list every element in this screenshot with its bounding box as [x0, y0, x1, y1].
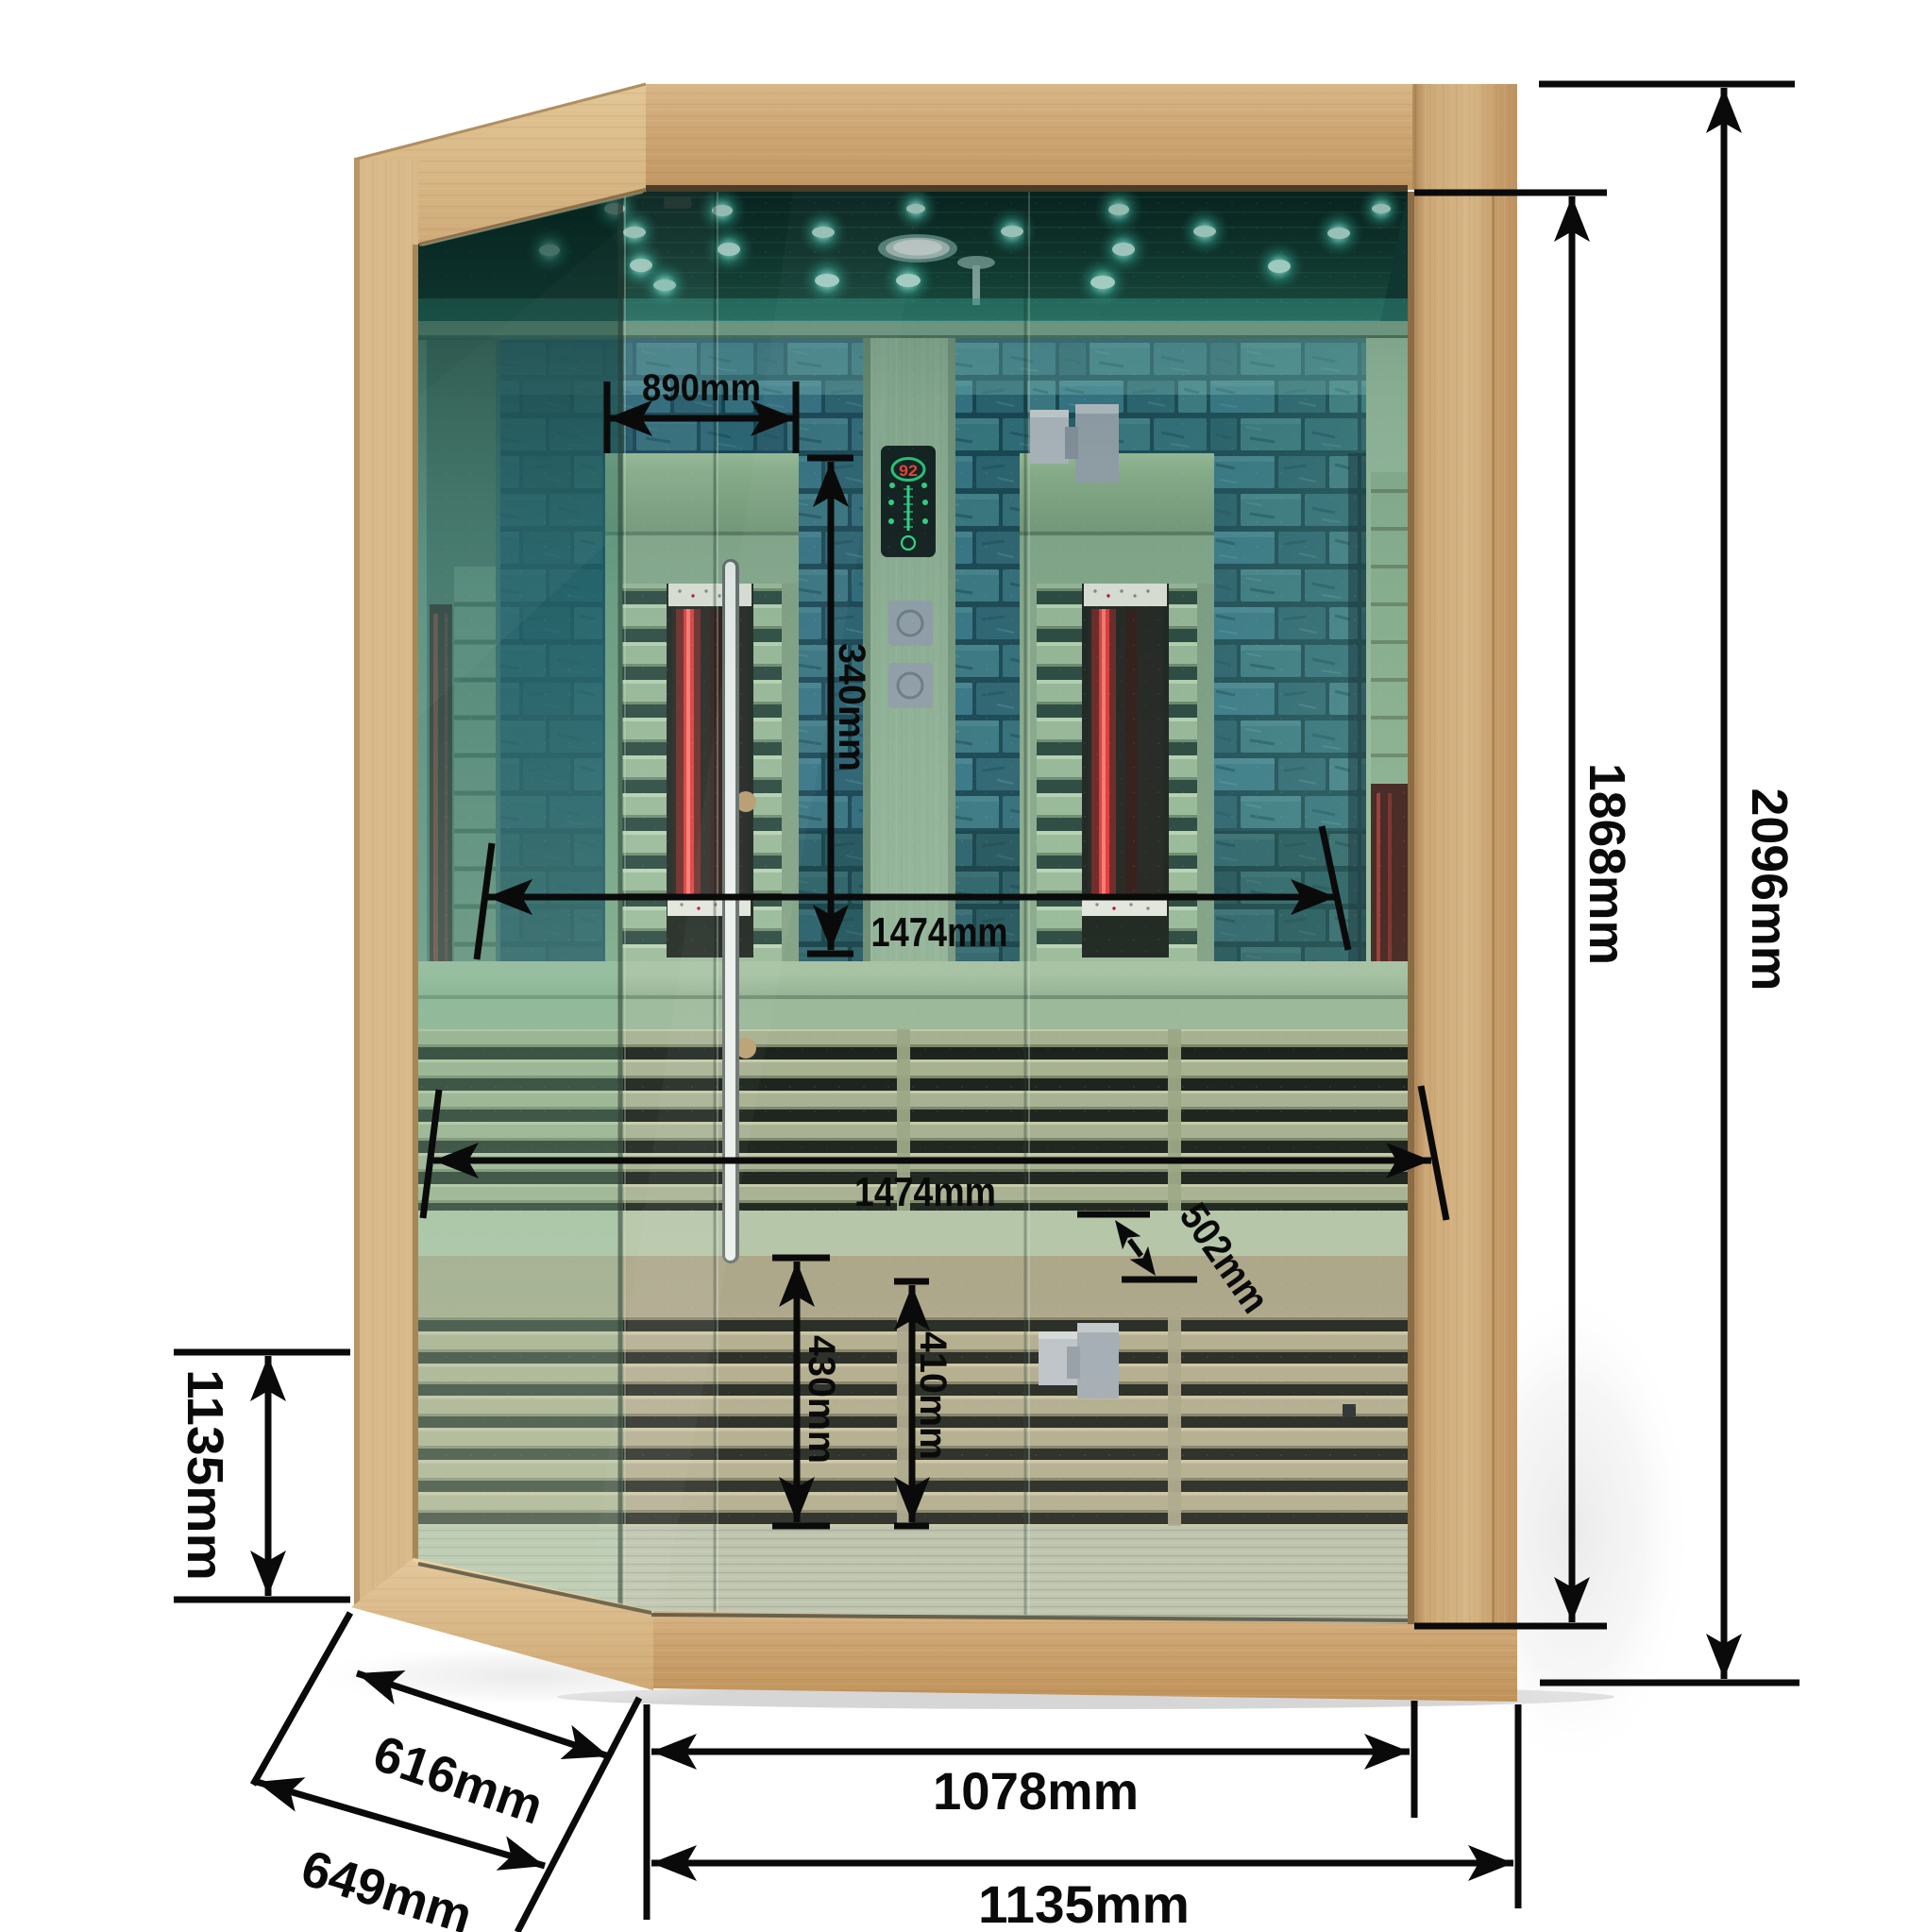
svg-text:1135mm: 1135mm — [177, 1369, 233, 1581]
svg-text:340mm: 340mm — [831, 643, 872, 771]
svg-text:1868mm: 1868mm — [1579, 763, 1635, 965]
svg-text:410mm: 410mm — [912, 1331, 954, 1460]
svg-text:1474mm: 1474mm — [871, 909, 1008, 956]
svg-text:1474mm: 1474mm — [854, 1169, 996, 1215]
svg-text:430mm: 430mm — [801, 1335, 842, 1464]
svg-text:2096mm: 2096mm — [1741, 788, 1798, 991]
svg-text:890mm: 890mm — [642, 367, 761, 409]
svg-text:1078mm: 1078mm — [933, 1761, 1139, 1821]
svg-text:1135mm: 1135mm — [978, 1874, 1190, 1932]
